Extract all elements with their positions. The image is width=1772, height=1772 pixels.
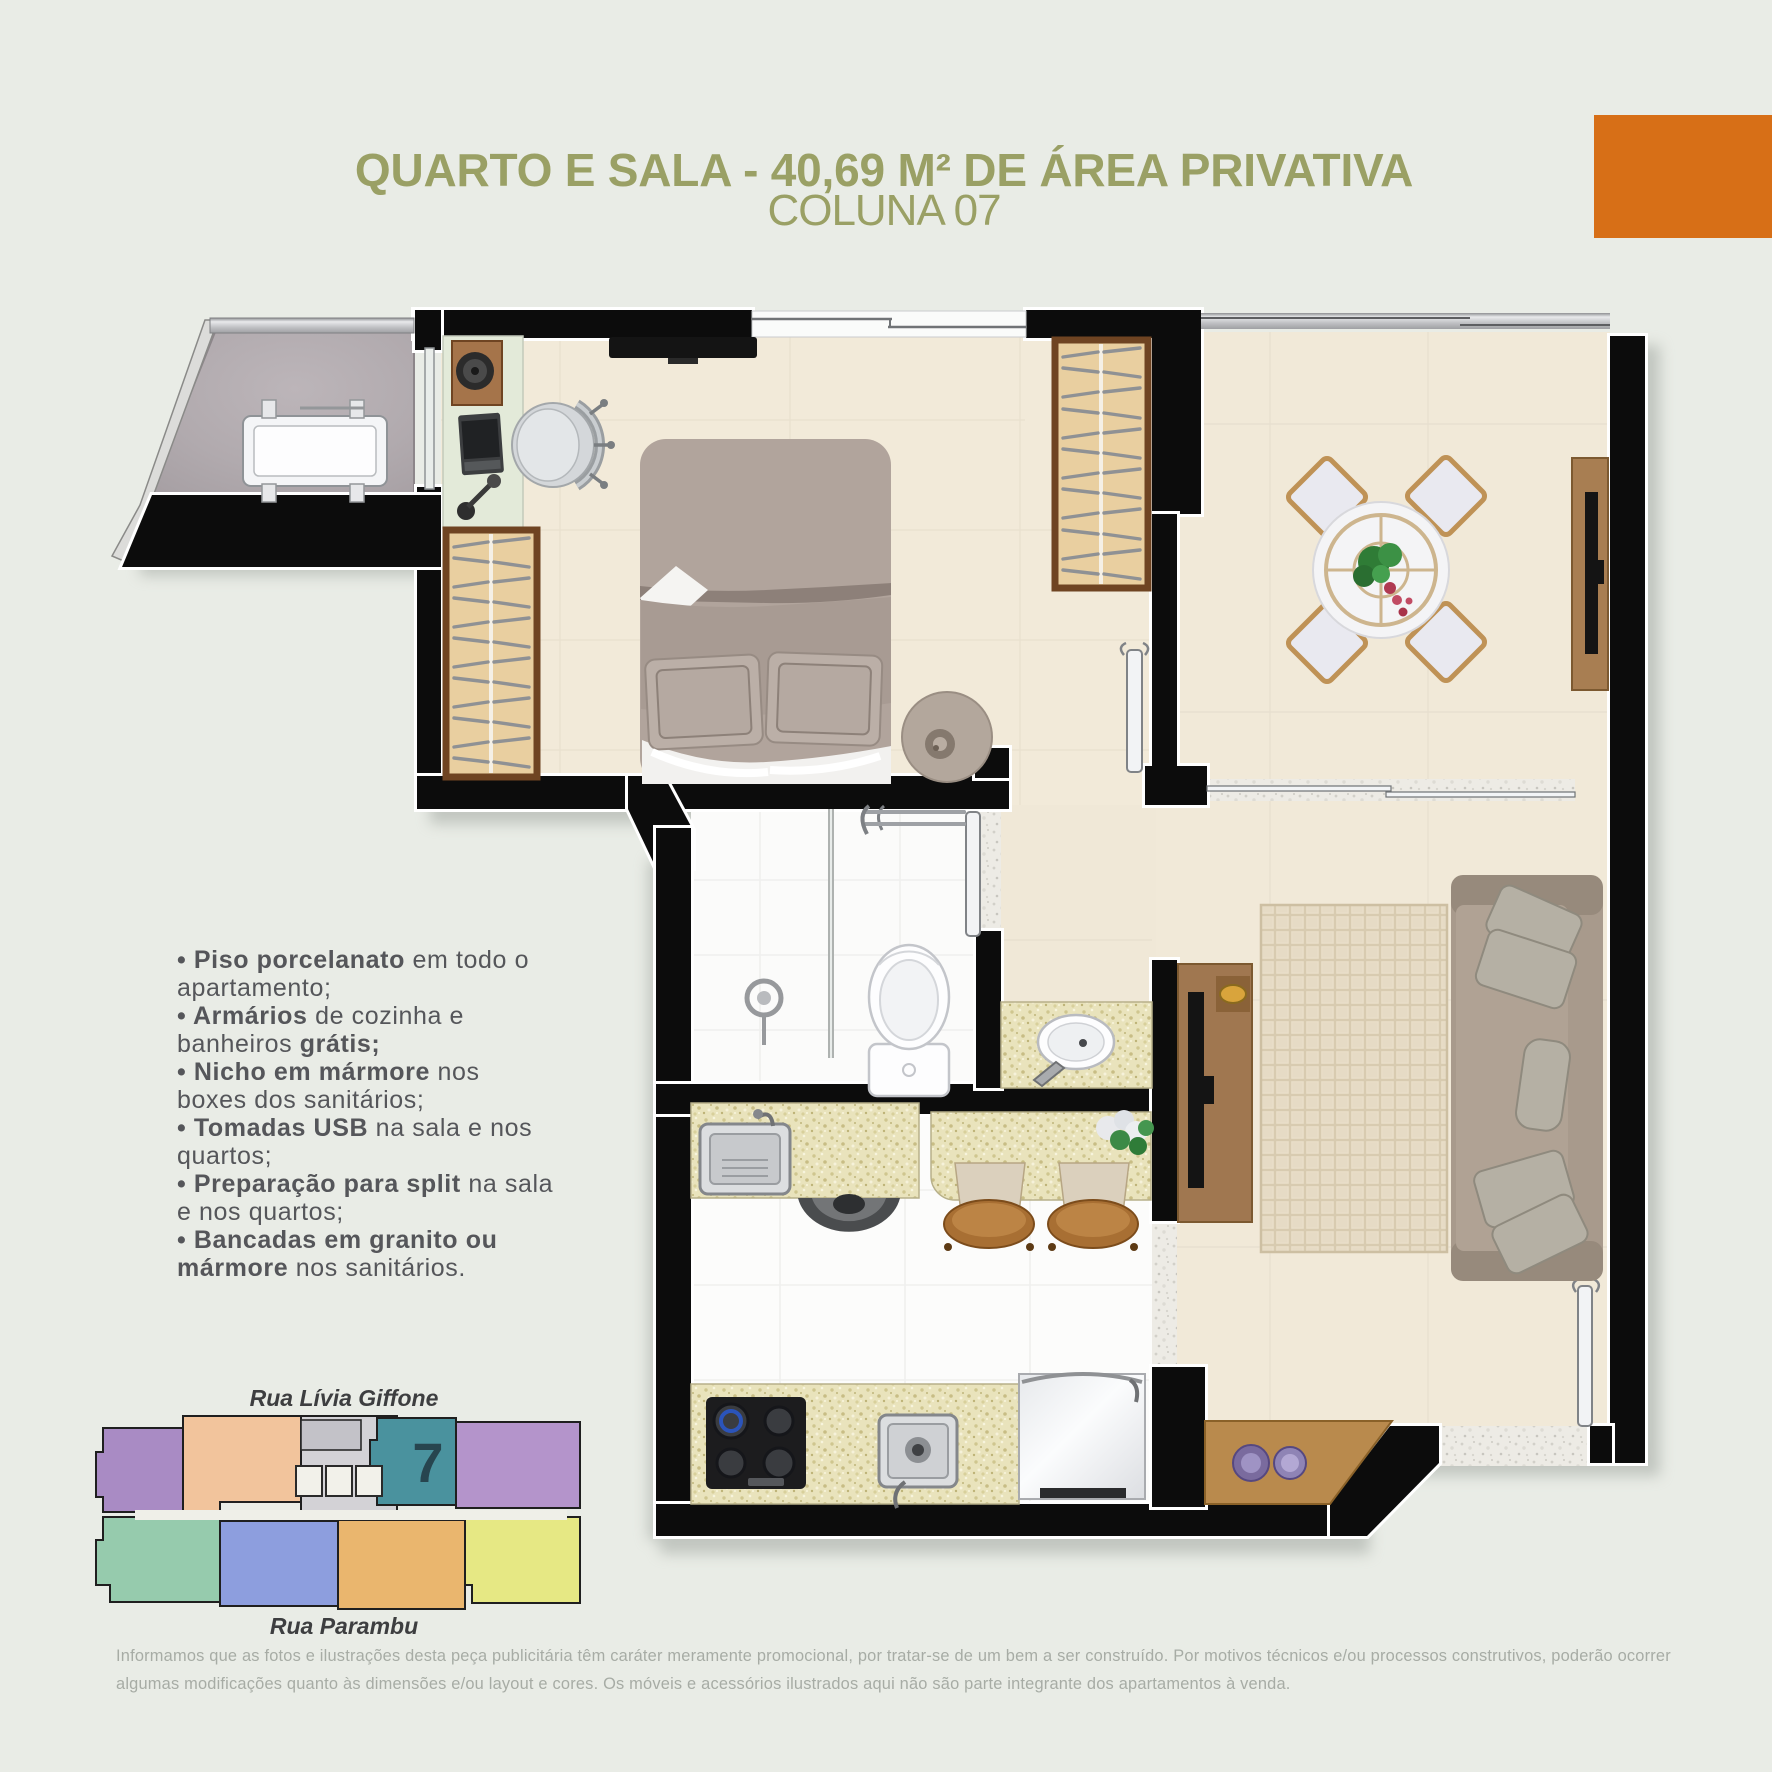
svg-text:mármore nos sanitários.: mármore nos sanitários. (177, 1254, 466, 1282)
svg-text:Informamos que as fotos e ilus: Informamos que as fotos e ilustrações de… (116, 1647, 1671, 1665)
svg-text:7: 7 (412, 1431, 443, 1494)
svg-text:boxes dos sanitários;: boxes dos sanitários; (177, 1086, 424, 1114)
svg-text:banheiros grátis;: banheiros grátis; (177, 1030, 380, 1058)
svg-text:apartamento;: apartamento; (177, 974, 332, 1002)
svg-text:• Preparação para split na sal: • Preparação para split na sala (177, 1170, 553, 1198)
svg-text:COLUNA 07: COLUNA 07 (767, 186, 1000, 235)
svg-text:e nos quartos;: e nos quartos; (177, 1198, 344, 1226)
svg-text:• Piso porcelanato em todo o: • Piso porcelanato em todo o (177, 946, 529, 974)
svg-text:algumas modificações quanto às: algumas modificações quanto às dimensões… (116, 1675, 1291, 1693)
svg-text:• Armários de cozinha e: • Armários de cozinha e (177, 1002, 464, 1030)
svg-text:Rua Lívia Giffone: Rua Lívia Giffone (250, 1385, 439, 1411)
svg-text:Rua Parambu: Rua Parambu (270, 1613, 418, 1639)
svg-text:quartos;: quartos; (177, 1142, 272, 1170)
svg-text:• Tomadas USB na sala e nos: • Tomadas USB na sala e nos (177, 1114, 532, 1142)
svg-text:• Nicho em mármore nos: • Nicho em mármore nos (177, 1058, 480, 1086)
svg-text:• Bancadas em granito ou: • Bancadas em granito ou (177, 1226, 497, 1254)
